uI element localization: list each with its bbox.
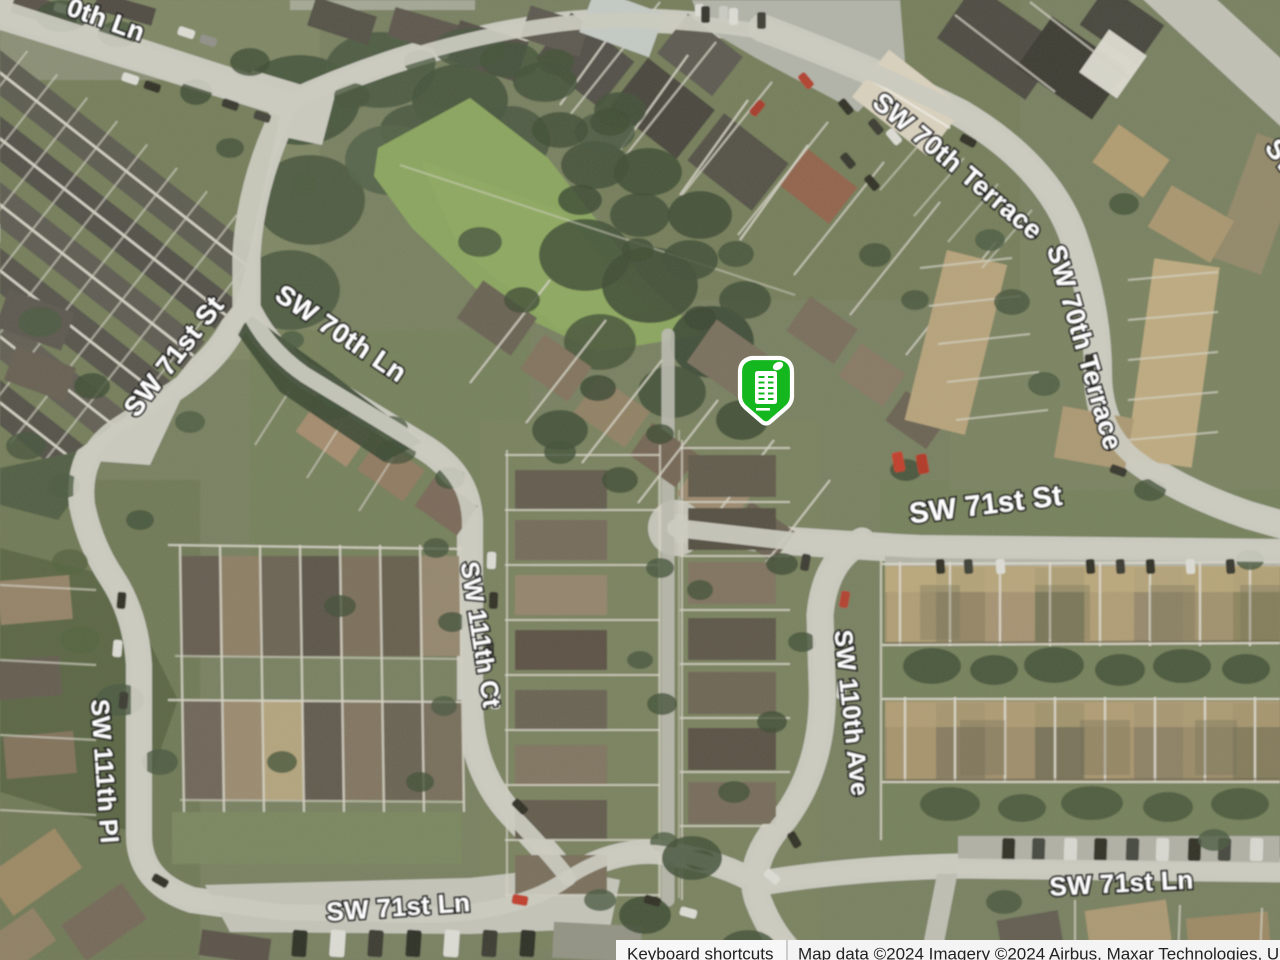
svg-text:Map data ©2024 Imagery ©2024 A: Map data ©2024 Imagery ©2024 Airbus, Max… bbox=[798, 945, 1279, 960]
svg-text:Keyboard shortcuts: Keyboard shortcuts bbox=[627, 945, 773, 960]
